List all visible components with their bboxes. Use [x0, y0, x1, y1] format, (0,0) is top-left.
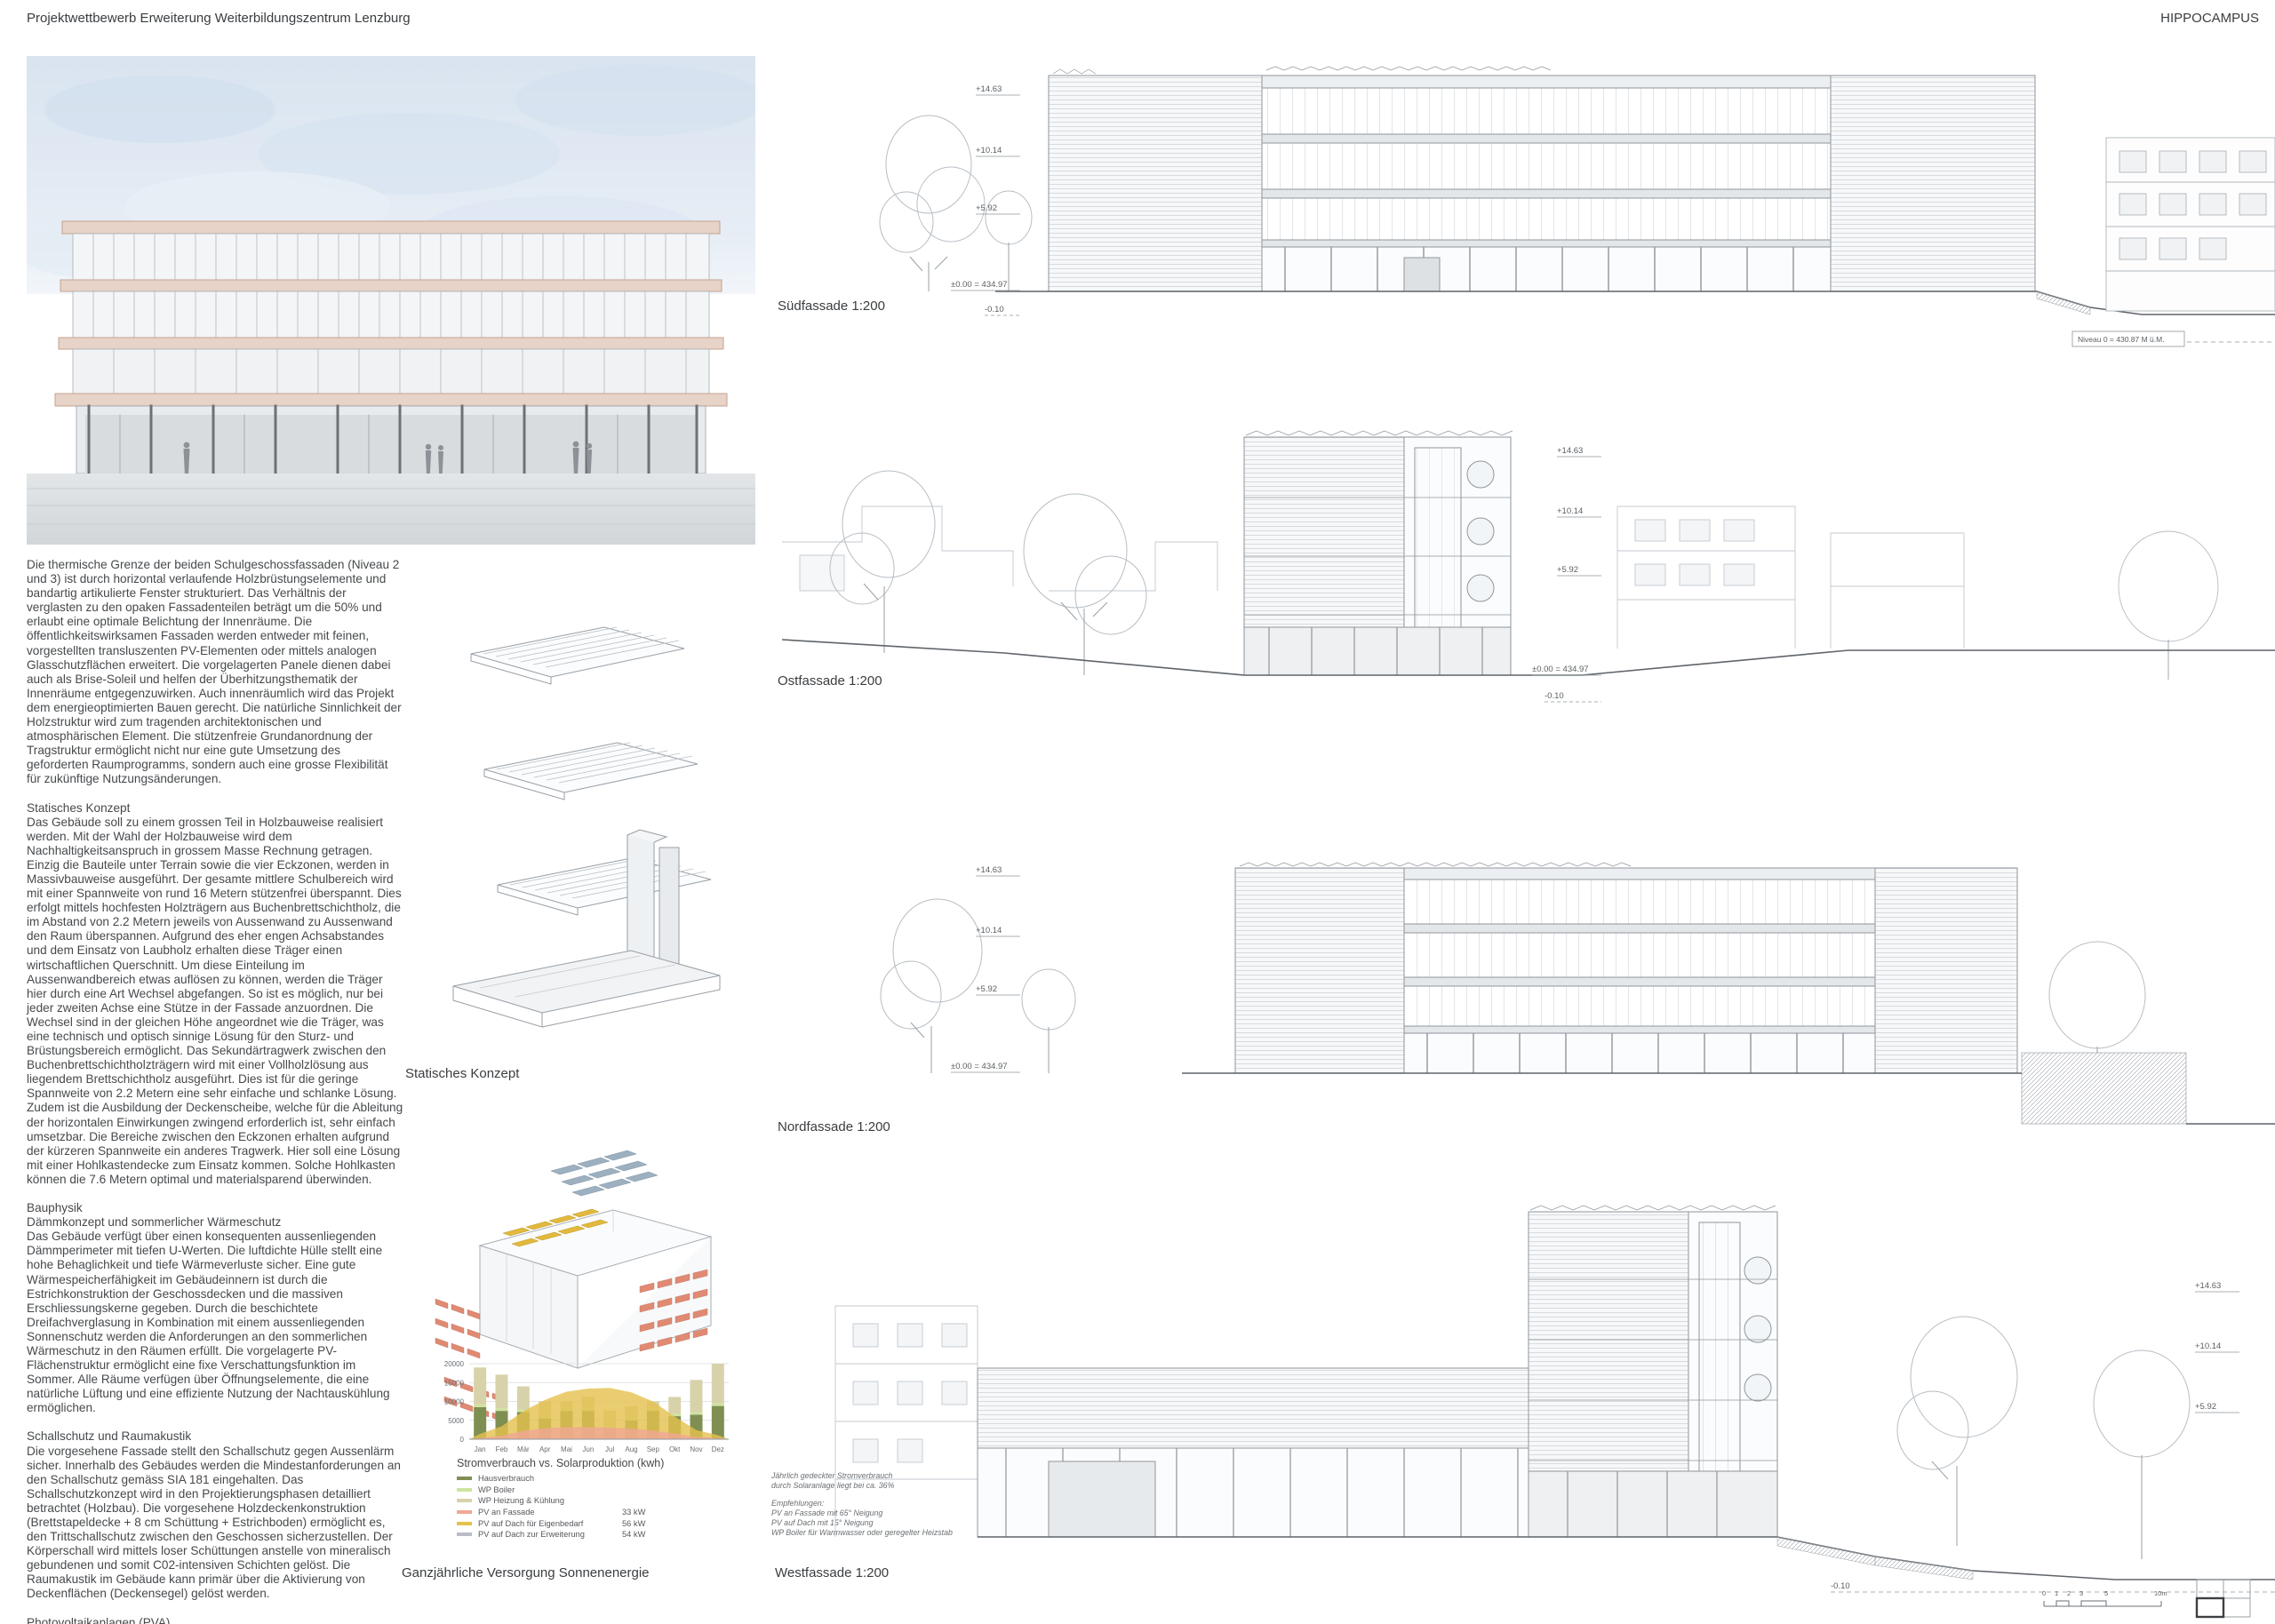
trees — [880, 115, 1032, 291]
svg-text:5: 5 — [2104, 1589, 2108, 1597]
svg-text:+14.63: +14.63 — [976, 84, 1002, 94]
ground-line — [782, 640, 2275, 675]
level-annotations: +14.63 +10.14 +5.92 ±0.00 = 434.97 — [951, 865, 1020, 1072]
svg-text:±0.00 = 434.97: ±0.00 = 434.97 — [951, 1062, 1008, 1071]
section-statisches-konzept: Statisches Konzept Das Gebäude soll zu e… — [27, 801, 403, 1188]
swatch-wp-heizung — [457, 1499, 472, 1502]
svg-text:2: 2 — [2067, 1589, 2071, 1597]
svg-text:±0.00 = 434.97: ±0.00 = 434.97 — [1532, 665, 1589, 674]
retaining-wall — [2022, 942, 2186, 1124]
svg-text:Mai: Mai — [561, 1445, 572, 1453]
sheet-index-key — [2197, 1580, 2250, 1617]
section-schallschutz: Schallschutz und Raumakustik Die vorgese… — [27, 1429, 403, 1601]
svg-text:20000: 20000 — [444, 1360, 465, 1368]
svg-text:-0.10: -0.10 — [985, 305, 1004, 314]
svg-text:0: 0 — [2042, 1589, 2046, 1597]
context-building — [835, 1306, 978, 1537]
svg-text:±0.00 = 434.97: ±0.00 = 434.97 — [951, 280, 1008, 290]
swatch-pv-dach-eigenbedarf — [457, 1522, 472, 1525]
swatch-pv-fassade — [457, 1510, 472, 1514]
svg-text:10000: 10000 — [444, 1398, 465, 1406]
svg-text:+14.63: +14.63 — [1557, 446, 1583, 456]
svg-text:Jan: Jan — [475, 1445, 486, 1453]
chart-title: Stromverbrauch vs. Solarproduktion (kwh) — [457, 1457, 664, 1469]
section-bauphysik: Bauphysik Dämmkonzept und sommerlicher W… — [27, 1201, 403, 1415]
niveau-note: Niveau 0 = 430.87 M ü.M. — [2072, 331, 2184, 346]
svg-text:+5.92: +5.92 — [976, 984, 997, 994]
trees — [1897, 1317, 2190, 1559]
svg-text:5000: 5000 — [448, 1417, 464, 1425]
elevation-west-drawing: +14.63 +10.14 +5.92 -0.10 — [782, 1155, 2275, 1599]
svg-text:Jul: Jul — [605, 1445, 614, 1453]
svg-text:3: 3 — [2079, 1589, 2083, 1597]
energy-chart: 05000100001500020000JanFebMärAprMaiJunJu… — [425, 1357, 762, 1462]
svg-text:+5.92: +5.92 — [2195, 1402, 2216, 1412]
trees — [830, 471, 1146, 675]
svg-text:Okt: Okt — [669, 1445, 681, 1453]
hero-rendering — [27, 56, 755, 545]
svg-text:+14.63: +14.63 — [976, 865, 1002, 875]
svg-text:+5.92: +5.92 — [1557, 565, 1578, 575]
context-right — [1617, 506, 2218, 680]
svg-text:Jun: Jun — [582, 1445, 594, 1453]
east-building — [1244, 431, 1513, 675]
svg-text:Mär: Mär — [517, 1445, 530, 1453]
svg-text:Niveau 0 = 430.87 M ü.M.: Niveau 0 = 430.87 M ü.M. — [2078, 335, 2165, 344]
svg-text:Apr: Apr — [539, 1445, 551, 1453]
svg-text:+10.14: +10.14 — [976, 926, 1002, 935]
level-annotations: +14.63 +10.14 +5.92 ±0.00 = 434.97 -0.10 — [1532, 446, 1601, 702]
label-ostfassade: Ostfassade 1:200 — [778, 673, 882, 689]
swatch-wp-boiler — [457, 1488, 472, 1492]
svg-text:Dez: Dez — [712, 1445, 724, 1453]
west-building — [978, 1206, 1777, 1537]
project-description: Die thermische Grenze der beiden Schulge… — [27, 558, 403, 1624]
svg-text:-0.10: -0.10 — [1545, 691, 1564, 701]
swatch-hausverbrauch — [457, 1477, 472, 1480]
svg-text:+14.63: +14.63 — [2195, 1281, 2221, 1291]
svg-text:-0.10: -0.10 — [1831, 1581, 1850, 1591]
section-photovoltaik: Photovoltaikanlagen (PVA) Mit der an die… — [27, 1616, 403, 1624]
svg-text:1: 1 — [2055, 1589, 2058, 1597]
label-westfassade: Westfassade 1:200 — [775, 1565, 889, 1580]
svg-text:+10.14: +10.14 — [976, 146, 1002, 155]
competition-board: Projektwettbewerb Erweiterung Weiterbild… — [0, 0, 2275, 1624]
label-nordfassade: Nordfassade 1:200 — [778, 1119, 890, 1134]
axon-statisches-konzept — [418, 569, 738, 1062]
south-building — [1049, 67, 2035, 291]
board-title: Projektwettbewerb Erweiterung Weiterbild… — [27, 11, 411, 26]
svg-text:Aug: Aug — [625, 1445, 637, 1453]
svg-text:Feb: Feb — [496, 1445, 508, 1453]
svg-text:10m: 10m — [2154, 1589, 2167, 1597]
building-facade — [55, 221, 727, 474]
svg-text:Sep: Sep — [647, 1445, 660, 1453]
project-motto: HIPPOCAMPUS — [2160, 11, 2259, 26]
foreground-ground — [27, 474, 755, 545]
svg-text:+10.14: +10.14 — [1557, 506, 1583, 516]
caption-energie: Ganzjährliche Versorgung Sonnenenergie — [402, 1565, 650, 1580]
elevation-nord-drawing: +14.63 +10.14 +5.92 ±0.00 = 434.97 — [782, 835, 2275, 1128]
caption-statisches-konzept: Statisches Konzept — [405, 1066, 519, 1081]
svg-text:0: 0 — [460, 1436, 465, 1444]
north-building — [1235, 863, 2017, 1073]
label-suedfassade: Südfassade 1:200 — [778, 299, 885, 314]
svg-text:+5.92: +5.92 — [976, 203, 997, 213]
scale-bar: 0 1 2 3 5 10m — [2026, 1574, 2275, 1622]
elevation-ost-drawing: +14.63 +10.14 +5.92 ±0.00 = 434.97 -0.10 — [782, 382, 2275, 711]
neighbour-building — [2106, 138, 2275, 311]
svg-text:+10.14: +10.14 — [2195, 1341, 2221, 1351]
svg-text:15000: 15000 — [444, 1379, 465, 1387]
swatch-pv-dach-erweiterung — [457, 1532, 472, 1536]
elevation-sued-drawing: +14.63 +10.14 +5.92 ±0.00 = 434.97 -0.10… — [782, 49, 2275, 360]
intro-paragraph: Die thermische Grenze der beiden Schulge… — [27, 558, 403, 787]
svg-text:Nov: Nov — [690, 1445, 702, 1453]
level-annotations: +14.63 +10.14 +5.92 -0.10 — [1831, 1281, 2239, 1591]
